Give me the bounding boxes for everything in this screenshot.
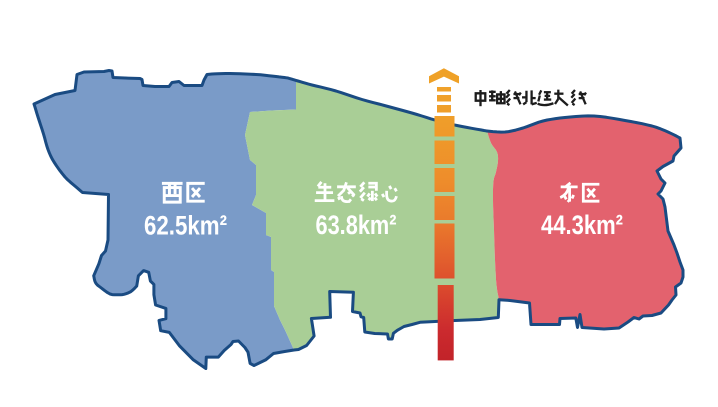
svg-text:62.5km²: 62.5km² <box>144 211 227 241</box>
svg-text:63.8km²: 63.8km² <box>316 210 397 240</box>
svg-text:44.3km²: 44.3km² <box>541 210 623 240</box>
